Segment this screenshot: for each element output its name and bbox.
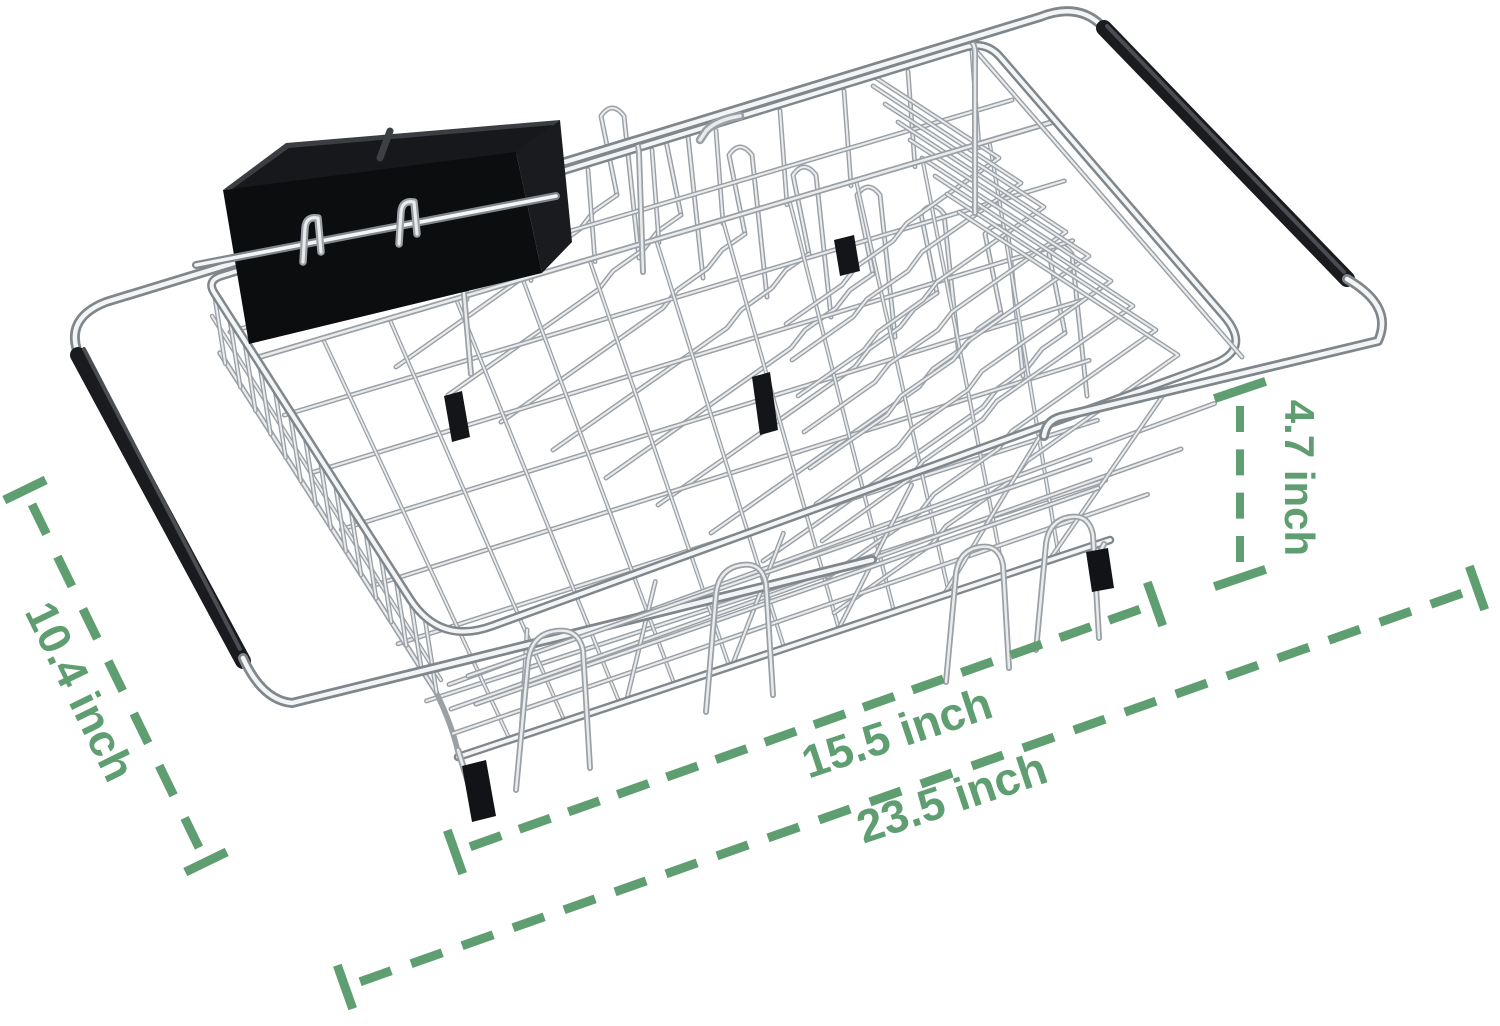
svg-text:4.7 inch: 4.7 inch: [1276, 400, 1323, 556]
